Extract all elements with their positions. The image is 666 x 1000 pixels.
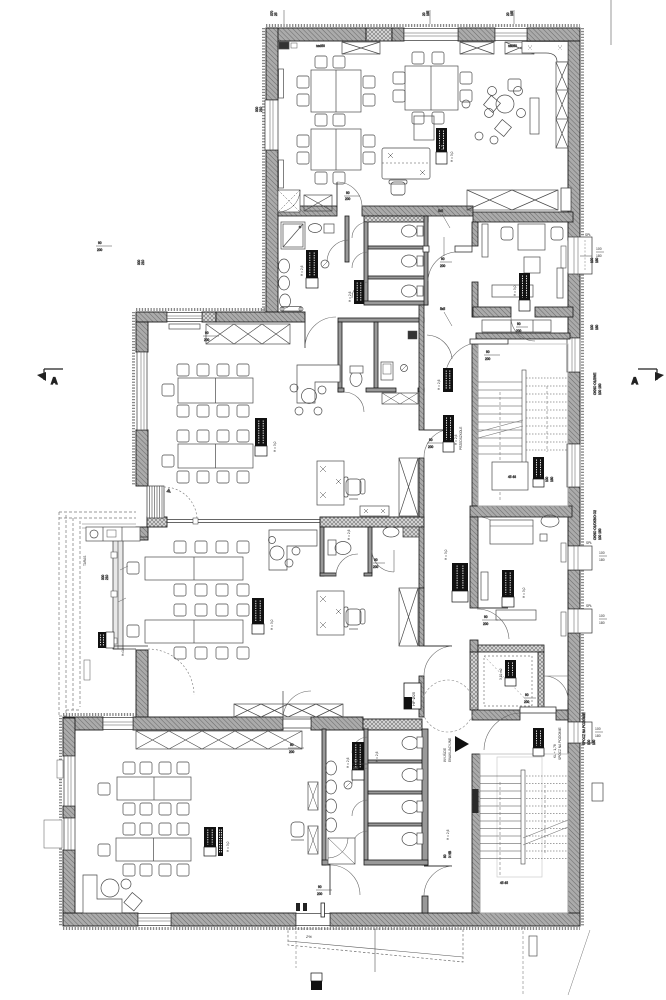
svg-text:SPOCZ NA POZIOMIE: SPOCZ NA POZIOMIE xyxy=(558,727,562,760)
svg-text:H = 2,6: H = 2,6 xyxy=(375,751,379,762)
svg-text:SPŁ: SPŁ xyxy=(585,233,591,237)
svg-text:5x5: 5x5 xyxy=(440,307,445,311)
svg-text:200: 200 xyxy=(373,565,379,569)
svg-text:90: 90 xyxy=(525,693,529,697)
svg-text:100 180: 100 180 xyxy=(598,383,602,395)
svg-text:200: 200 xyxy=(345,197,351,201)
svg-text:210: 210 xyxy=(259,106,263,112)
svg-text:90: 90 xyxy=(290,743,294,747)
svg-text:180: 180 xyxy=(592,739,596,745)
svg-text:180: 180 xyxy=(550,476,554,482)
svg-text:100: 100 xyxy=(596,247,602,251)
svg-text:100: 100 xyxy=(599,614,605,618)
svg-text:0 HB: 0 HB xyxy=(448,851,452,858)
svg-text:H = 2,6: H = 2,6 xyxy=(300,265,304,276)
svg-text:200: 200 xyxy=(204,338,210,342)
svg-text:45 48: 45 48 xyxy=(508,475,516,479)
svg-text:100: 100 xyxy=(545,476,549,482)
svg-text:100: 100 xyxy=(590,324,594,330)
svg-text:200: 200 xyxy=(516,329,522,333)
svg-text:90: 90 xyxy=(318,885,322,889)
svg-text:KL + 1,78: KL + 1,78 xyxy=(553,744,557,758)
svg-text:180: 180 xyxy=(595,734,601,738)
svg-text:200: 200 xyxy=(485,357,491,361)
svg-text:180: 180 xyxy=(599,558,605,562)
svg-text:100: 100 xyxy=(599,551,605,555)
svg-text:H = 3,0: H = 3,0 xyxy=(522,587,526,598)
svg-text:165: 165 xyxy=(426,10,430,16)
svg-text:H = 2,6: H = 2,6 xyxy=(454,434,458,445)
svg-text:90: 90 xyxy=(486,350,490,354)
svg-text:5x5: 5x5 xyxy=(438,209,443,213)
svg-text:100: 100 xyxy=(587,739,591,745)
svg-text:180: 180 xyxy=(595,257,599,263)
svg-text:H=14: H=14 xyxy=(121,648,125,656)
svg-text:180: 180 xyxy=(599,621,605,625)
svg-text:SPŁ: SPŁ xyxy=(586,604,592,608)
svg-text:90: 90 xyxy=(429,438,433,442)
svg-text:90: 90 xyxy=(484,615,488,619)
svg-text:H = 2,6: H = 2,6 xyxy=(437,379,441,390)
svg-text:90: 90 xyxy=(98,241,102,245)
svg-text:210: 210 xyxy=(105,574,109,580)
svg-text:nad60: nad60 xyxy=(508,44,517,48)
svg-text:2%: 2% xyxy=(305,934,312,939)
svg-text:H = 3,0: H = 3,0 xyxy=(270,619,274,630)
svg-text:PRZEDSZKOLE: PRZEDSZKOLE xyxy=(459,427,463,450)
svg-text:A: A xyxy=(632,376,639,386)
svg-text:HP Ø25: HP Ø25 xyxy=(411,691,416,706)
svg-text:OKNO O1/2WE: OKNO O1/2WE xyxy=(593,373,597,395)
svg-text:100: 100 xyxy=(595,727,601,731)
svg-text:H = 2,6: H = 2,6 xyxy=(446,829,450,840)
svg-text:SPOCZ NA POZIOMIE: SPOCZ NA POZIOMIE xyxy=(582,712,586,745)
svg-text:nad60: nad60 xyxy=(316,44,325,48)
svg-text:200: 200 xyxy=(317,892,323,896)
svg-text:200: 200 xyxy=(440,264,446,268)
svg-text:H = 3,0: H = 3,0 xyxy=(273,441,277,452)
svg-text:WYJŚCIE: WYJŚCIE xyxy=(442,748,447,762)
svg-text:200: 200 xyxy=(289,750,295,754)
svg-text:H = 3,0: H = 3,0 xyxy=(444,549,448,560)
svg-text:A: A xyxy=(51,376,58,386)
svg-text:165: 165 xyxy=(510,10,514,16)
svg-text:200: 200 xyxy=(524,700,530,704)
svg-text:100 180: 100 180 xyxy=(598,528,602,540)
svg-text:200: 200 xyxy=(97,248,103,252)
svg-text:TARAS: TARAS xyxy=(83,556,87,566)
svg-text:H = 2,6: H = 2,6 xyxy=(346,757,350,768)
svg-text:25: 25 xyxy=(274,12,278,16)
svg-text:SPŁ: SPŁ xyxy=(586,541,592,545)
svg-text:90: 90 xyxy=(205,331,209,335)
svg-text:H = 2,6: H = 2,6 xyxy=(348,291,352,302)
svg-text:H = 3,0: H = 3,0 xyxy=(513,285,517,296)
svg-text:100: 100 xyxy=(590,257,594,263)
svg-text:EWAKUACYJNE: EWAKUACYJNE xyxy=(448,738,452,762)
svg-text:180: 180 xyxy=(596,254,602,258)
svg-text:3,10 m2: 3,10 m2 xyxy=(499,668,503,680)
svg-text:90: 90 xyxy=(374,558,378,562)
svg-text:90: 90 xyxy=(346,191,350,195)
svg-text:H = 3,0: H = 3,0 xyxy=(226,841,230,852)
svg-text:90: 90 xyxy=(517,322,521,326)
svg-text:OKNO O1/OKNO O2: OKNO O1/OKNO O2 xyxy=(593,510,597,540)
svg-text:H = 2,6: H = 2,6 xyxy=(347,529,351,540)
svg-text:45 45: 45 45 xyxy=(500,881,508,885)
svg-text:180: 180 xyxy=(595,324,599,330)
svg-text:200: 200 xyxy=(428,445,434,449)
svg-text:210: 210 xyxy=(141,259,145,265)
svg-text:80: 80 xyxy=(443,854,447,858)
svg-text:90: 90 xyxy=(441,257,445,261)
svg-text:200: 200 xyxy=(483,622,489,626)
svg-text:H = 3,0: H = 3,0 xyxy=(450,151,454,162)
svg-text:1-7: 1-7 xyxy=(441,145,445,150)
